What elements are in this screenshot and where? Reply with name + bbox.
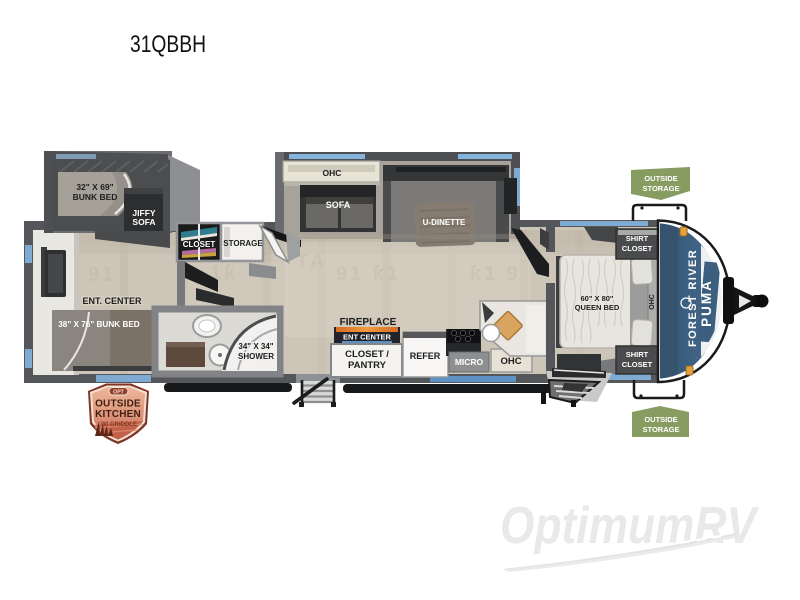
svg-text:SHIRT: SHIRT bbox=[626, 350, 649, 359]
svg-text:PUMA: PUMA bbox=[699, 279, 714, 327]
svg-text:91: 91 bbox=[88, 264, 116, 286]
svg-text:31QBBH: 31QBBH bbox=[130, 31, 206, 58]
svg-text:REFER: REFER bbox=[410, 351, 441, 361]
svg-text:91 ƙ1: 91 ƙ1 bbox=[336, 263, 401, 285]
svg-text:OPT: OPT bbox=[113, 390, 124, 396]
svg-text:CLOSET: CLOSET bbox=[183, 240, 216, 249]
svg-text:SHIRT: SHIRT bbox=[626, 234, 649, 243]
svg-text:U-DINETTE: U-DINETTE bbox=[423, 218, 466, 227]
svg-text:CLOSET /: CLOSET / bbox=[345, 349, 389, 360]
svg-text:KITCHEN: KITCHEN bbox=[95, 409, 141, 420]
svg-text:OUTSIDE: OUTSIDE bbox=[95, 399, 141, 410]
svg-text:OptimumRV: OptimumRV bbox=[500, 497, 760, 555]
svg-text:W/ GRIDDLE: W/ GRIDDLE bbox=[101, 422, 137, 428]
svg-text:60" X 80": 60" X 80" bbox=[581, 294, 614, 303]
svg-text:ENT CENTER: ENT CENTER bbox=[343, 333, 392, 342]
svg-text:CLOSET: CLOSET bbox=[622, 360, 653, 369]
svg-text:SHOWER: SHOWER bbox=[238, 352, 274, 361]
svg-text:32" X 69": 32" X 69" bbox=[76, 182, 113, 192]
svg-text:ENT. CENTER: ENT. CENTER bbox=[82, 296, 142, 306]
svg-text:CLOSET: CLOSET bbox=[622, 244, 653, 253]
svg-text:34" X 34": 34" X 34" bbox=[238, 342, 273, 351]
svg-text:OUTSIDE: OUTSIDE bbox=[644, 174, 677, 183]
svg-text:QUEEN BED: QUEEN BED bbox=[575, 303, 620, 312]
svg-text:OUTSIDE: OUTSIDE bbox=[644, 415, 677, 424]
svg-text:38" X 76" BUNK BED: 38" X 76" BUNK BED bbox=[58, 320, 140, 329]
svg-text:STORAGE: STORAGE bbox=[643, 425, 680, 434]
svg-text:OHC: OHC bbox=[500, 356, 521, 367]
svg-text:OHC: OHC bbox=[649, 294, 656, 310]
svg-text:OHC: OHC bbox=[323, 168, 342, 178]
svg-text:STORAGE: STORAGE bbox=[223, 239, 263, 248]
svg-text:BUNK BED: BUNK BED bbox=[73, 192, 118, 202]
svg-text:SOFA: SOFA bbox=[326, 200, 351, 210]
svg-text:PANTRY: PANTRY bbox=[348, 360, 387, 371]
svg-text:FIREPLACE: FIREPLACE bbox=[340, 317, 397, 328]
svg-text:TA: TA bbox=[296, 251, 327, 273]
svg-text:FOREST RIVER: FOREST RIVER bbox=[687, 249, 699, 347]
svg-text:SOFA: SOFA bbox=[132, 217, 155, 227]
svg-text:ƙ1 9: ƙ1 9 bbox=[470, 263, 521, 285]
svg-text:STORAGE: STORAGE bbox=[643, 184, 680, 193]
svg-text:MICRO: MICRO bbox=[455, 357, 484, 367]
